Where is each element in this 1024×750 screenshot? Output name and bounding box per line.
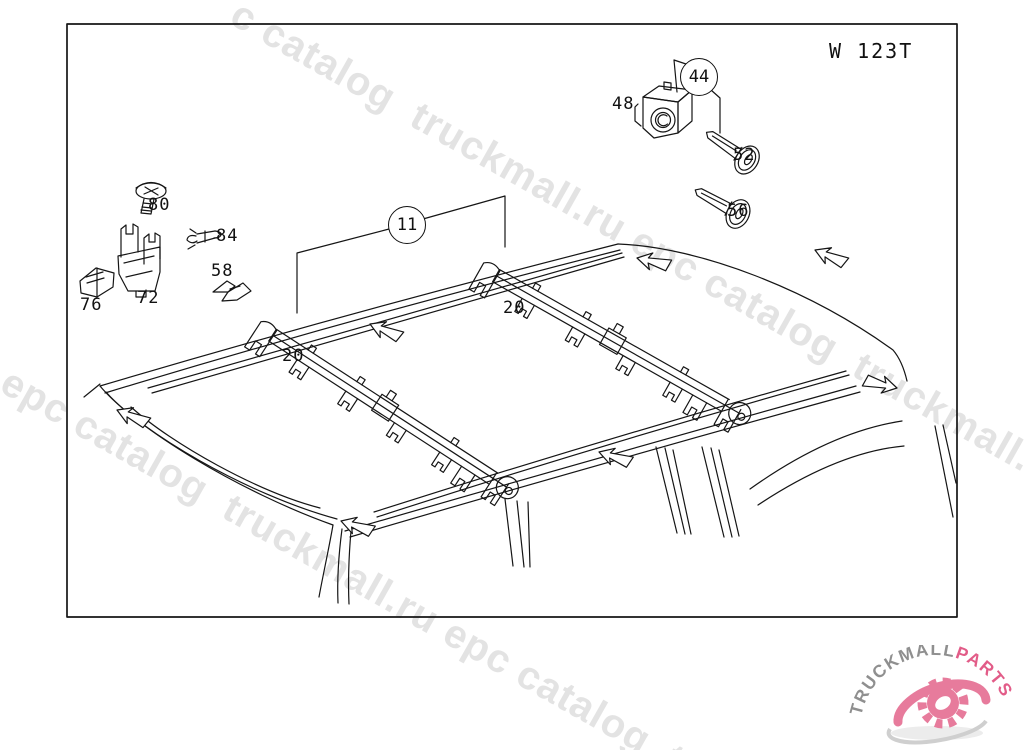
callout-44-number: 44: [689, 67, 709, 87]
label-80: 80: [148, 196, 170, 214]
label-72: 72: [137, 289, 159, 307]
label-56: 56: [727, 202, 749, 220]
label-84: 84: [216, 227, 238, 245]
label-48: 48: [612, 95, 634, 113]
callout-11: 11: [388, 206, 426, 244]
part-48-lock: [635, 82, 692, 138]
line-art-drawing: [0, 0, 1024, 750]
callout-11-number: 11: [397, 215, 417, 235]
model-code: W 123T: [829, 39, 913, 63]
label-58: 58: [211, 262, 233, 280]
part-76-clip: [80, 268, 114, 297]
truckmallparts-logo: TRUCKMALLPARTS: [832, 645, 1022, 745]
drawing-frame: [67, 24, 957, 617]
parts-diagram-page: c catalog truckmall.ru epc catalog truck…: [0, 0, 1024, 750]
label-20-rear: 20: [503, 299, 525, 317]
cross-bar-front: [244, 311, 527, 516]
label-52: 52: [733, 146, 755, 164]
label-76: 76: [80, 296, 102, 314]
part-72-bracket: [118, 224, 160, 297]
callout-44: 44: [680, 58, 718, 96]
part-58-clamp: [213, 281, 251, 301]
label-20-front: 20: [282, 347, 304, 365]
